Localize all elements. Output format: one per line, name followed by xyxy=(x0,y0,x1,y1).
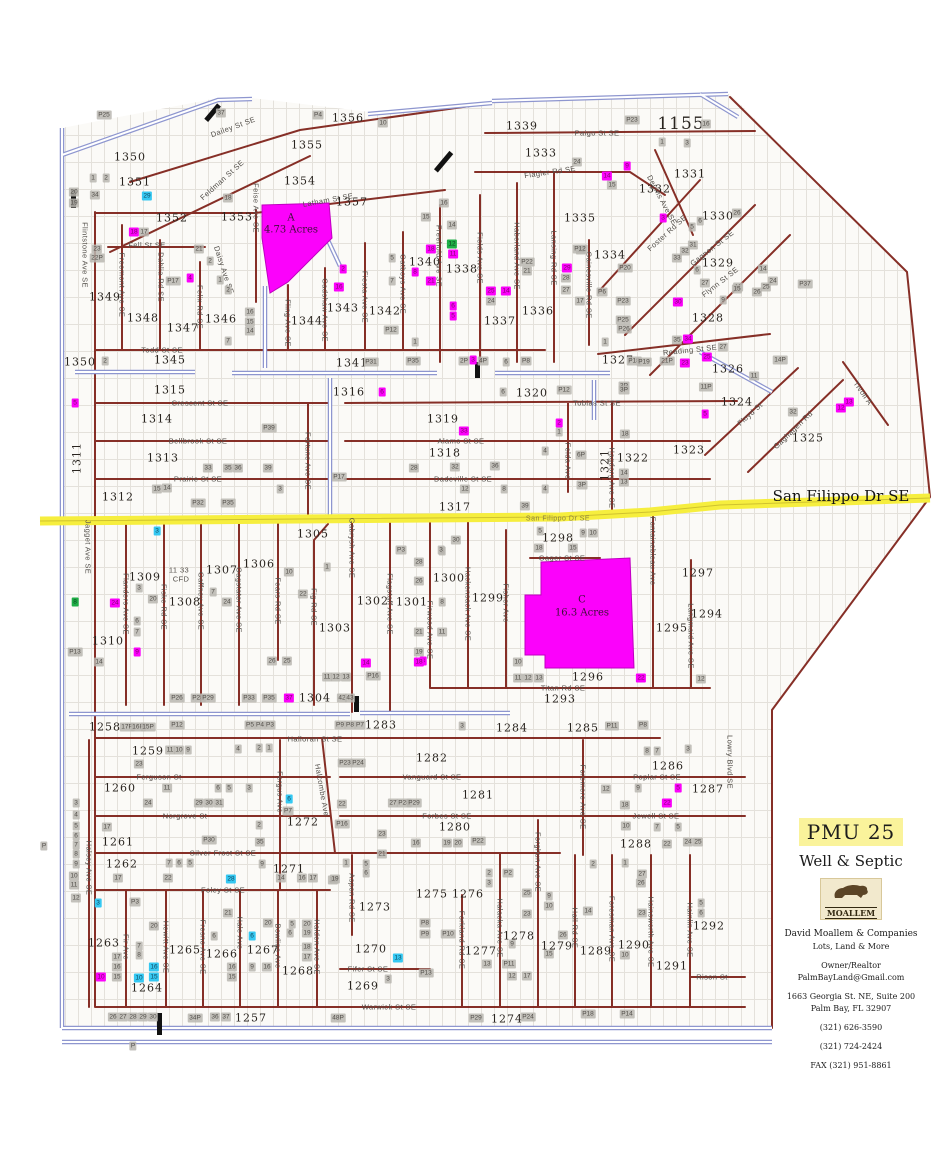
lot-number: 22 xyxy=(163,874,173,883)
lot-number: 26 xyxy=(558,931,568,940)
block-number: 1320 xyxy=(516,387,548,400)
lot-number: 15 xyxy=(245,318,255,327)
lot-number: 9 xyxy=(185,746,192,755)
lot-number: 32 xyxy=(450,463,460,472)
street-name: Gabrysh Ave SE xyxy=(348,518,357,579)
lot-number: 1 xyxy=(412,338,419,347)
lot-number: 6 xyxy=(215,784,222,793)
street-name: Fell St SE xyxy=(128,241,165,250)
lot-number: 1 xyxy=(602,338,609,347)
lot-number: 28 xyxy=(414,558,424,567)
lot-number: 10 xyxy=(620,951,630,960)
lot-number: 18 xyxy=(620,801,630,810)
block-number: 1344 xyxy=(291,315,323,328)
block-number: 1350 xyxy=(64,356,96,369)
block-number: 1318 xyxy=(429,447,461,460)
lot-number: 16 xyxy=(262,963,272,972)
lot-number: 24 xyxy=(572,158,582,167)
lot-number: 29 xyxy=(138,1013,148,1022)
lot-number: P12 xyxy=(573,245,588,254)
lot-number: 12 xyxy=(71,894,81,903)
lot-number: P4 xyxy=(313,111,324,120)
block-number: 1351 xyxy=(119,176,151,189)
lot-number: 2P xyxy=(459,357,470,366)
lot-number: 14 xyxy=(447,221,457,230)
lot-number: 24 xyxy=(110,599,120,608)
lot-number: 3 xyxy=(385,975,392,984)
lot-number: 11 xyxy=(448,250,458,259)
block-number: 1274 xyxy=(491,1013,523,1026)
lot-number: 43 xyxy=(345,694,355,703)
lot-number: P35 xyxy=(221,499,236,508)
street-name: Gager St SE xyxy=(539,554,586,563)
lot-number: P31 xyxy=(364,358,379,367)
lot-number: 32 xyxy=(788,408,798,417)
lot-number: 33 xyxy=(459,427,469,436)
lot-number: 8 xyxy=(439,598,446,607)
lot-number: 5 xyxy=(226,784,233,793)
lot-number: 16 xyxy=(297,874,307,883)
block-number: 1295 xyxy=(656,622,688,635)
street-name: Poplar St SE xyxy=(633,773,681,782)
lot-number: 1 xyxy=(622,859,629,868)
lot-number: 15P xyxy=(141,723,156,732)
street-name: Fling Ave SE xyxy=(284,299,293,347)
lot-number: 10 xyxy=(621,822,631,831)
lot-number: P9 xyxy=(420,930,431,939)
lot-number: 19 xyxy=(414,648,424,657)
block-number: 1296 xyxy=(572,671,604,684)
block-number: 1346 xyxy=(205,313,237,326)
lot-number: 6 xyxy=(363,869,370,878)
block-number: 1276 xyxy=(452,888,484,901)
street-name: Foley St SE xyxy=(201,886,245,895)
lot-number: 21 xyxy=(223,909,233,918)
lot-number: 17 xyxy=(308,874,318,883)
block-number: 1305 xyxy=(297,528,329,541)
lot-number: 11 xyxy=(749,372,759,381)
lot-number: 6 xyxy=(73,832,80,841)
block-number: 1273 xyxy=(359,901,391,914)
block-number: 1303 xyxy=(319,622,351,635)
lot-number: P3 xyxy=(130,898,141,907)
street-name: Crescent St SE xyxy=(172,399,229,408)
street-name: Fresno Ave SE xyxy=(199,919,208,974)
phone-2: (321) 724-2424 xyxy=(768,1042,934,1051)
lot-number: 3 xyxy=(459,722,466,731)
lot-number: 21P xyxy=(660,357,675,366)
lot-number: 10 xyxy=(134,974,144,983)
lot-number: 26 xyxy=(752,288,762,297)
street-name: Lansing Rd SE xyxy=(550,230,559,285)
lot-number: 18 xyxy=(534,544,544,553)
lot-number: 17 xyxy=(102,823,112,832)
lot-number: 12 xyxy=(331,673,341,682)
street-name: Tobias St SE xyxy=(573,399,621,408)
block-number: 1275 xyxy=(416,888,448,901)
lot-number: 3 xyxy=(73,799,80,808)
lot-number: 14P xyxy=(773,356,788,365)
lot-number: 28 xyxy=(226,875,236,884)
block-number: 1285 xyxy=(567,722,599,735)
street-name: Halden Ave SE xyxy=(313,919,322,975)
lot-number: 5 xyxy=(675,784,682,793)
street-name: Gainesville Rd SE xyxy=(585,251,594,318)
lot-number: P8 xyxy=(420,919,431,928)
block-number: 1339 xyxy=(506,120,538,133)
lot-number: 22P xyxy=(90,254,105,263)
lot-number: 27 xyxy=(700,279,710,288)
block-number: 1314 xyxy=(141,413,173,426)
lot-number: 6 xyxy=(134,617,141,626)
lot-number: 3 xyxy=(154,527,161,536)
block-number: 1345 xyxy=(154,354,186,367)
street-name: Hainsworth Ave SE xyxy=(647,897,656,968)
block-number: 1337 xyxy=(484,315,516,328)
block-number: 1348 xyxy=(127,312,159,325)
lot-number: 23 xyxy=(522,910,532,919)
lot-number: 5 xyxy=(698,899,705,908)
lot-number: P17 xyxy=(166,277,181,286)
lot-number: 3 xyxy=(486,879,493,888)
lot-number: 22 xyxy=(636,674,646,683)
lot-number: P13 xyxy=(68,648,83,657)
lot-number: 10 xyxy=(544,902,554,911)
street-name: Feise Ave SE xyxy=(252,183,261,233)
block-number: 1277 xyxy=(465,945,497,958)
lot-number: P22 xyxy=(520,258,535,267)
street-name: Dailey St SE xyxy=(209,115,256,140)
lot-number: 13 xyxy=(341,673,351,682)
block-number: 1265 xyxy=(169,944,201,957)
block-number: 1299 xyxy=(472,592,504,605)
street-name: Firwood Ave SE xyxy=(426,601,435,660)
lot-number: P24 xyxy=(351,759,366,768)
lot-number: 1 xyxy=(90,174,97,183)
block-number: 1354 xyxy=(284,175,316,188)
lot-number: 15 xyxy=(152,485,162,494)
lot-number: 34P xyxy=(188,1014,203,1023)
block-number: 1313 xyxy=(147,452,179,465)
lot-number: 2 xyxy=(103,174,110,183)
lot-number: 5 xyxy=(289,920,296,929)
block-number: 1331 xyxy=(674,168,706,181)
street-name: Gaffney Ave SE xyxy=(197,572,206,630)
logo-name: MOALLEM xyxy=(825,907,877,919)
lot-number: 5 xyxy=(689,223,696,232)
lot-number: 6 xyxy=(694,266,701,275)
street-name: Tivoli A xyxy=(852,379,875,406)
lot-number: 27 xyxy=(637,870,647,879)
moallem-logo: MOALLEM xyxy=(820,878,882,920)
lot-number: 19 xyxy=(330,875,340,884)
lot-number: P11 xyxy=(502,960,516,969)
lot-number: 13 xyxy=(534,674,544,683)
lot-number: P10 xyxy=(441,930,456,939)
lot-number: 9 xyxy=(134,648,141,657)
lot-number: 13 xyxy=(482,960,492,969)
lot-number: 15 xyxy=(112,973,122,982)
street-name: Felda Ave xyxy=(564,443,573,480)
lot-number: 23 xyxy=(92,245,102,254)
lot-number: 30 xyxy=(673,298,683,307)
lot-number: 7 xyxy=(134,628,141,637)
lot-number: 9 xyxy=(720,296,727,305)
block-number: 1324 xyxy=(721,396,753,409)
block-number: 1352 xyxy=(156,212,188,225)
block-number: 1270 xyxy=(355,943,387,956)
lot-number: 5 xyxy=(389,254,396,263)
lot-number: 15 xyxy=(149,973,159,982)
block-number: 1300 xyxy=(433,572,465,585)
lot-number: P30 xyxy=(202,836,217,845)
lot-number: 39 xyxy=(263,464,273,473)
lot-number: 2 xyxy=(256,744,263,753)
lot-number: 15 xyxy=(421,213,431,222)
lot-number: 35 xyxy=(223,464,233,473)
street-name: Forghun Ave SE xyxy=(534,832,543,892)
block-number: 1293 xyxy=(544,693,576,706)
lot-number: 6 xyxy=(211,932,218,941)
lot-number: 27 xyxy=(718,343,728,352)
block-number: 1338 xyxy=(446,263,478,276)
street-name: Flintstone Ave SE xyxy=(81,222,90,288)
lot-number: 10 xyxy=(69,872,79,881)
lot-number: 5 xyxy=(450,312,457,321)
lot-number: 4 xyxy=(187,274,194,283)
lot-number: 16 xyxy=(701,120,711,129)
lot-number: 19 xyxy=(302,929,312,938)
street-name: Paigo St SE xyxy=(575,129,620,138)
street-name: Gatboys Ave SE xyxy=(399,254,408,314)
street-name: Bellbrook St SE xyxy=(169,437,228,446)
lot-number: 17 xyxy=(522,972,532,981)
street-name: Flagstaff Ave SE xyxy=(386,573,395,635)
company-name: David Moallem & Companies xyxy=(768,929,934,939)
email: PalmBayLand@Gmail.com xyxy=(768,973,934,982)
lot-number: 23 xyxy=(680,359,690,368)
lot-number: 16 xyxy=(245,308,255,317)
lot-number: 25 xyxy=(761,283,771,292)
street-name: Forbes St SE xyxy=(422,812,471,821)
lot-number: 18 xyxy=(223,194,233,203)
lot-number: 25 xyxy=(522,889,532,898)
lot-number: 1 xyxy=(343,859,350,868)
block-number: 1323 xyxy=(673,444,705,457)
street-name: Lowry Blvd SE xyxy=(726,735,735,789)
bear-icon xyxy=(829,880,873,902)
lot-number: 24 xyxy=(683,838,693,847)
san-filippo-label: San Filippo Dr SE xyxy=(773,487,910,505)
lot-number: 14 xyxy=(162,484,172,493)
street-name: Gagstater Ave SE xyxy=(235,567,244,633)
cfd-note: CFD xyxy=(173,575,190,584)
lot-number: P xyxy=(129,1042,136,1051)
lot-number: 7 xyxy=(225,337,232,346)
lot-number: 20 xyxy=(302,920,312,929)
lot-number: 8 xyxy=(136,951,143,960)
parcel-c-acres: 16.3 Acres xyxy=(555,608,609,619)
lot-number: 5 xyxy=(702,410,709,419)
block-number: 1291 xyxy=(656,960,688,973)
street-name: Flagler Rd SE xyxy=(524,164,577,180)
lot-number: 11 xyxy=(162,784,172,793)
lot-number: 25 xyxy=(486,287,496,296)
lot-number: 17 xyxy=(575,297,585,306)
lot-number: 5 xyxy=(363,860,370,869)
lot-number: 9 xyxy=(73,860,80,869)
street-name: Foremere Ave SE xyxy=(579,764,588,829)
lot-number: 9 xyxy=(249,963,256,972)
lot-number: 9 xyxy=(259,860,266,869)
lot-number: 4 xyxy=(73,811,80,820)
block-number: 1325 xyxy=(792,432,824,445)
block-number: 1264 xyxy=(131,982,163,995)
lot-number: 12 xyxy=(696,675,706,684)
lot-number: 12 xyxy=(836,404,846,413)
street-name: Freemont Ave SE xyxy=(118,253,127,318)
lot-number: 1 xyxy=(266,744,273,753)
street-name: Forkland Rd SE xyxy=(458,911,467,970)
lot-number: 15 xyxy=(227,973,237,982)
block-number: 1287 xyxy=(692,783,724,796)
block-number: 1356 xyxy=(332,112,364,125)
lot-number: P12 xyxy=(557,386,572,395)
lot-number: 11P xyxy=(699,383,713,392)
lot-number: 12 xyxy=(447,240,457,249)
street-name: Prairie St SE xyxy=(174,475,222,484)
lot-number: P2 xyxy=(503,869,514,878)
lot-number: 6 xyxy=(697,217,704,226)
street-name: Hagdorn Ave SE xyxy=(608,448,617,509)
lot-number: 7 xyxy=(654,747,661,756)
block-number: 1272 xyxy=(287,816,319,829)
lot-number: P35 xyxy=(262,694,277,703)
lot-number: 3 xyxy=(660,214,667,223)
street-name: Hale Ave xyxy=(236,916,245,949)
street-name: Fontainebleau Ave xyxy=(649,517,658,586)
lot-number: 10 xyxy=(174,746,184,755)
info-panel: PMU 25 Well & Septic MOALLEM David Moall… xyxy=(768,818,934,1070)
block-number: 1309 xyxy=(129,571,161,584)
block-number: 1155 xyxy=(657,114,704,134)
block-number: 1262 xyxy=(106,858,138,871)
block-number: 1315 xyxy=(154,384,186,397)
lot-number: 13 xyxy=(393,954,403,963)
block-number: 1288 xyxy=(620,838,652,851)
lot-number: 28 xyxy=(561,274,571,283)
lot-number: 1 xyxy=(324,563,331,572)
lot-number: 22 xyxy=(662,799,672,808)
street-name: Foresman Ave SE xyxy=(608,896,617,962)
lot-number: 14 xyxy=(276,874,286,883)
lot-number: 22 xyxy=(662,840,672,849)
lot-number: 11 xyxy=(437,628,447,637)
lot-number: 17 xyxy=(112,953,122,962)
block-number: 1260 xyxy=(104,782,136,795)
lot-number: 26 xyxy=(636,879,646,888)
lot-number: 34 xyxy=(683,335,693,344)
lot-number: P13 xyxy=(419,969,434,978)
street-name: Ferguson St xyxy=(136,773,181,782)
lot-number: 26 xyxy=(414,577,424,586)
block-number: 1330 xyxy=(702,210,734,223)
lot-number: P16 xyxy=(366,672,381,681)
lot-number: 33 xyxy=(203,464,213,473)
block-number: 1319 xyxy=(427,413,459,426)
san-filippo-label-small: San Filippo Dr SE xyxy=(526,516,590,523)
pmu-title: PMU 25 xyxy=(799,818,904,846)
lot-number: 16 xyxy=(439,199,449,208)
lot-number: 16 xyxy=(411,839,421,848)
lot-number: 9 xyxy=(546,892,553,901)
lot-number: P22 xyxy=(471,837,486,846)
lot-number: 37 xyxy=(216,109,226,118)
block-number: 1349 xyxy=(89,291,121,304)
lot-number: 10 xyxy=(513,658,523,667)
lot-number: 3 xyxy=(470,356,477,365)
lot-number: 35 xyxy=(255,838,265,847)
lot-number: 9 xyxy=(635,784,642,793)
lot-number: 30 xyxy=(148,1013,158,1022)
lot-number: 18 xyxy=(129,228,139,237)
street-name: Felix Rd SE xyxy=(196,285,205,329)
lot-number: 17 xyxy=(139,228,149,237)
lot-number: 8 xyxy=(501,485,508,494)
lot-number: 5 xyxy=(73,822,80,831)
lot-number: 28 xyxy=(409,464,419,473)
lot-number: 21 xyxy=(426,277,436,286)
lot-number: 12 xyxy=(507,972,517,981)
lot-number: 11 xyxy=(513,674,523,683)
lot-number: P7 xyxy=(283,807,294,816)
block-number: 1294 xyxy=(691,608,723,621)
lot-number: 7 xyxy=(73,841,80,850)
street-name: Hewitt Ave SE xyxy=(162,921,171,974)
lot-number: 21 xyxy=(414,628,424,637)
block-number: 1328 xyxy=(692,312,724,325)
lot-number: 2 xyxy=(207,257,214,266)
block-number: 1353 xyxy=(221,211,253,224)
block-number: 1302 xyxy=(357,595,389,608)
lot-number: P37 xyxy=(798,280,813,289)
lot-number: 6 xyxy=(450,302,457,311)
block-number: 1334 xyxy=(594,249,626,262)
block-number: 1280 xyxy=(439,821,471,834)
lot-number: 2 xyxy=(256,821,263,830)
block-number: 1301 xyxy=(396,596,428,609)
lot-number: 15 xyxy=(607,181,617,190)
lot-number: 24 xyxy=(486,297,496,306)
block-number: 1326 xyxy=(712,363,744,376)
lot-number: 17 xyxy=(302,953,312,962)
lot-number: P8 xyxy=(638,721,649,730)
lot-number: 26 xyxy=(267,657,277,666)
lot-number: 2 xyxy=(225,286,232,295)
lot-number: 3P xyxy=(619,386,630,395)
street-name: Fig Rd SE xyxy=(310,588,319,626)
lot-number: 16 xyxy=(227,963,237,972)
lot-number: 21 xyxy=(194,245,204,254)
lot-number: P29 xyxy=(407,799,422,808)
phone-1: (321) 626-3590 xyxy=(768,1023,934,1032)
street-name: Todd St SE xyxy=(141,346,183,355)
lot-number: 20 xyxy=(148,595,158,604)
lot-number: 10 xyxy=(378,119,388,128)
street-name: Langmaid Ave SE xyxy=(687,603,696,669)
owner-role: Owner/Realtor xyxy=(768,961,934,970)
lot-number: 20 xyxy=(263,919,273,928)
